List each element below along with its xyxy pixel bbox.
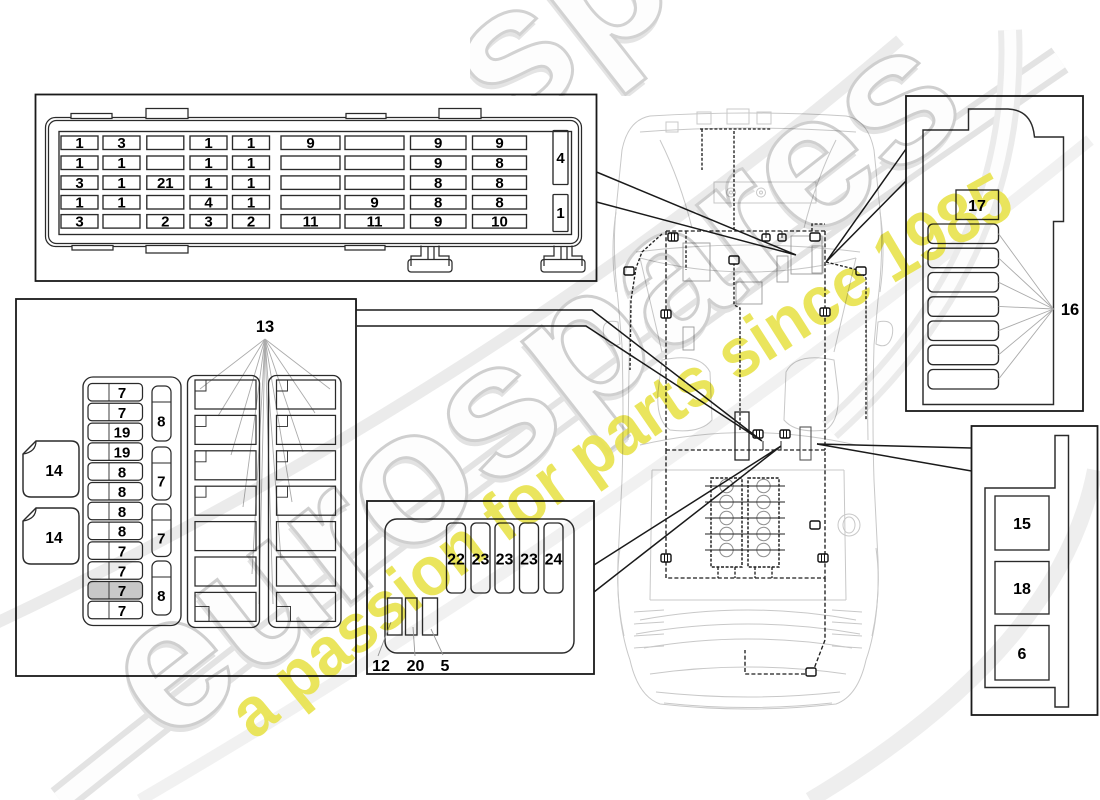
svg-text:1: 1 (117, 175, 125, 192)
svg-text:24: 24 (545, 552, 563, 569)
svg-text:1: 1 (247, 175, 255, 192)
svg-text:15: 15 (1013, 516, 1031, 533)
svg-text:4: 4 (556, 150, 565, 167)
svg-text:8: 8 (118, 464, 126, 481)
svg-text:1: 1 (247, 194, 255, 211)
svg-text:1: 1 (117, 194, 125, 211)
svg-text:14: 14 (45, 530, 63, 547)
svg-text:18: 18 (1013, 581, 1031, 598)
svg-text:8: 8 (434, 194, 442, 211)
svg-text:3: 3 (117, 135, 125, 152)
svg-text:4: 4 (204, 194, 213, 211)
svg-text:11: 11 (367, 214, 383, 231)
svg-text:1: 1 (247, 155, 255, 172)
svg-text:21: 21 (157, 175, 174, 192)
svg-text:8: 8 (434, 175, 442, 192)
svg-text:19: 19 (114, 425, 131, 442)
svg-text:7: 7 (118, 405, 126, 422)
svg-text:16: 16 (1061, 301, 1079, 319)
svg-text:8: 8 (118, 524, 126, 541)
svg-text:13: 13 (256, 318, 274, 336)
svg-text:20: 20 (407, 658, 425, 675)
svg-text:1: 1 (75, 155, 83, 172)
svg-text:11: 11 (303, 214, 319, 231)
svg-text:5: 5 (441, 658, 450, 675)
svg-text:8: 8 (118, 484, 126, 501)
svg-text:9: 9 (434, 155, 442, 172)
svg-text:14: 14 (45, 463, 63, 480)
svg-text:1: 1 (75, 194, 83, 211)
svg-text:2: 2 (161, 214, 169, 231)
svg-text:1: 1 (204, 135, 212, 152)
svg-text:1: 1 (75, 135, 83, 152)
svg-text:9: 9 (434, 214, 442, 231)
svg-text:1: 1 (117, 155, 125, 172)
svg-text:8: 8 (495, 155, 503, 172)
svg-text:19: 19 (114, 445, 131, 462)
svg-text:3: 3 (75, 214, 83, 231)
svg-text:3: 3 (204, 214, 212, 231)
svg-text:9: 9 (306, 135, 314, 152)
svg-text:8: 8 (495, 175, 503, 192)
svg-text:10: 10 (491, 214, 508, 231)
svg-text:8: 8 (157, 414, 165, 431)
svg-text:2: 2 (247, 214, 255, 231)
svg-text:1: 1 (204, 175, 212, 192)
svg-text:7: 7 (118, 385, 126, 402)
svg-text:8: 8 (495, 194, 503, 211)
svg-text:1: 1 (204, 155, 212, 172)
svg-text:9: 9 (434, 135, 442, 152)
svg-text:6: 6 (1018, 646, 1027, 663)
svg-text:9: 9 (495, 135, 503, 152)
svg-text:7: 7 (157, 474, 165, 491)
svg-text:3: 3 (75, 175, 83, 192)
svg-text:8: 8 (118, 504, 126, 521)
svg-text:1: 1 (247, 135, 255, 152)
svg-text:9: 9 (370, 194, 378, 211)
